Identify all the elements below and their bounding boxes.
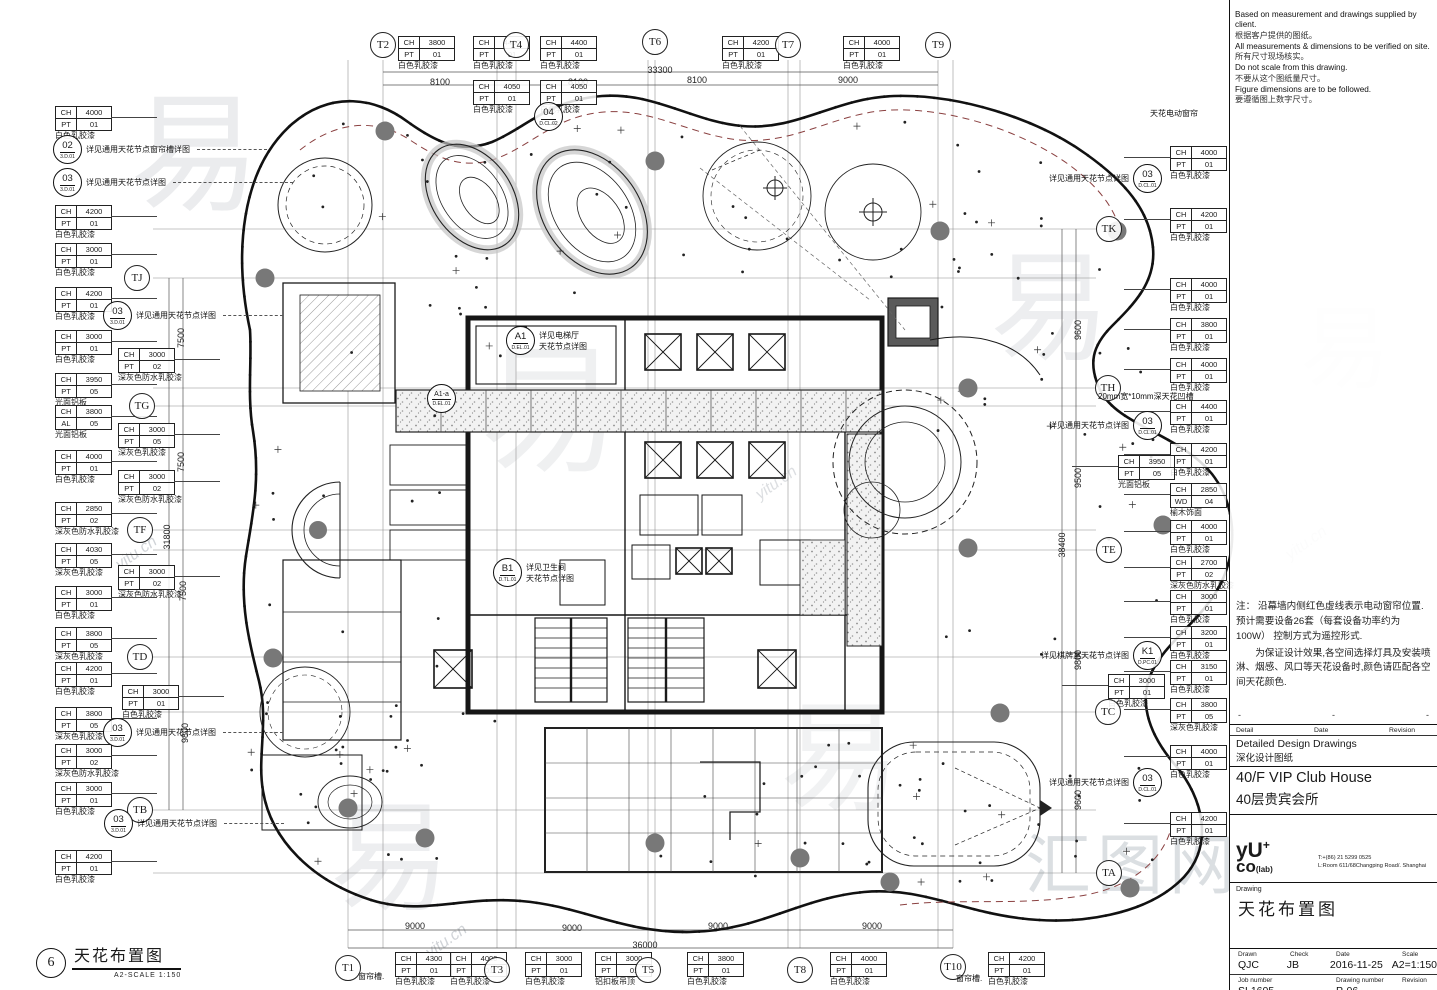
column	[991, 704, 1010, 723]
finish-name: 深灰色乳胶漆	[1170, 724, 1227, 732]
finish-name: 白色乳胶漆	[395, 978, 452, 986]
title-block-sidebar: Based on measurement and drawings suppli…	[1229, 0, 1437, 990]
dimension-label: 31800	[162, 524, 172, 549]
drawing-label: Drawing	[1236, 886, 1437, 893]
plan-title-block: 6 天花布置图 A2-SCALE 1:150	[36, 942, 181, 979]
finish-tag: CH3150PT01白色乳胶漆	[1170, 660, 1227, 694]
finish-name: 白色乳胶漆	[540, 62, 597, 70]
detail-callout-A1-a: A1-aD.EL.01	[427, 384, 464, 413]
column	[881, 873, 900, 892]
detail-callout-A1: A1D.EL.01详见电梯厅 天花节点详图	[506, 326, 591, 355]
note-cn-3: 要遵循图上数字尺寸。	[1235, 95, 1434, 105]
grid-bubble-TC: TC	[1095, 699, 1121, 725]
finish-name: 深灰色防水乳胶漆	[118, 374, 182, 382]
callout-circle: K1D.PC.01	[1133, 641, 1162, 670]
finish-tag: CH3000PT01白色乳胶漆	[55, 330, 112, 364]
finish-tag: CH4030PT05深灰色乳胶漆	[55, 543, 112, 577]
detail-callout-03: 详见通用天花节点详图03D.CL.01	[934, 411, 1162, 440]
callout-circle: 03D.CL.01	[1133, 768, 1162, 797]
callout-circle: 03D.CL.01	[1133, 164, 1162, 193]
finish-name: 白色乳胶漆	[1170, 546, 1227, 554]
finish-tag: CH4200PT01白色乳胶漆	[1170, 208, 1227, 242]
doc-type-cn: 深化设计图纸	[1236, 750, 1431, 764]
callout-circle: A1D.EL.01	[506, 326, 535, 355]
detail-callout-03: 033.D.01详见通用天花节点详图	[104, 809, 284, 838]
finish-tag: CH3800PT05深灰色乳胶漆	[1170, 698, 1227, 732]
finish-name: 白色乳胶漆	[1170, 686, 1227, 694]
finish-tag: CH3200PT01白色乳胶漆	[1170, 626, 1227, 660]
finish-tag: CH4000PT01白色乳胶漆	[1170, 146, 1227, 180]
finish-tag: CH3800PT01白色乳胶漆	[1170, 318, 1227, 352]
finish-name: 白色乳胶漆	[55, 269, 112, 277]
finish-tag: CH4200PT01白色乳胶漆	[55, 662, 112, 696]
column	[646, 834, 665, 853]
finish-tag: CH3950PT05光面铝板	[55, 373, 112, 407]
dimension-label: 7500	[176, 328, 186, 348]
dimension-label: 9000	[405, 921, 425, 931]
grid-bubble-T9: T9	[925, 32, 951, 58]
callout-text: 详见通用天花节点详图	[1049, 777, 1129, 788]
date-label: Date	[1336, 951, 1402, 958]
finish-tag: CH4400PT01白色乳胶漆	[540, 36, 597, 70]
col-revision: Revision	[1389, 727, 1415, 734]
detail-callout-04: 04D.CL.02	[534, 102, 571, 131]
callout-text: 详见通用天花节点详图	[137, 818, 217, 829]
dimension-label: 36000	[632, 940, 657, 950]
finish-tag: CH4400PT01白色乳胶漆	[1170, 400, 1227, 434]
doc-type-en: Detailed Design Drawings	[1236, 738, 1431, 750]
firm-logo-block: yU+ co(lab) T:+(86) 21 5299 0525 L:Room …	[1230, 838, 1437, 883]
finish-name: 白色乳胶漆	[1170, 616, 1227, 624]
finish-name: 白色乳胶漆	[1170, 771, 1227, 779]
col-detail: Detail	[1236, 727, 1314, 734]
project-title-cn: 40层贵宾会所	[1236, 788, 1431, 808]
revision-dashes: ---	[1238, 710, 1429, 720]
grid-bubble-T2: T2	[370, 32, 396, 58]
column	[959, 379, 978, 398]
finish-tag: CH4000PT01白色乳胶漆	[1170, 278, 1227, 312]
finish-tag: CH4200PT01白色乳胶漆	[55, 205, 112, 239]
grid-bubble-TE: TE	[1096, 537, 1122, 563]
callout-circle: 033.D.01	[53, 168, 82, 197]
finish-name: 白色乳胶漆	[687, 978, 744, 986]
finish-tag: CH3800AL05光面铝板	[55, 405, 112, 439]
finish-tag: CH3000PT01白色乳胶漆	[122, 685, 179, 719]
grid-bubble-T5: T5	[635, 957, 661, 983]
callout-text: 详见电梯厅 天花节点详图	[539, 330, 587, 352]
job-number-value: SL1605	[1238, 985, 1290, 990]
finish-tag: CH3000PT01白色乳胶漆	[1170, 590, 1227, 624]
detail-callout-B1: B1D.TL.01详见卫生间 天花节点详图	[493, 558, 578, 587]
grid-bubble-T8: T8	[787, 957, 813, 983]
finish-tag: CH4000PT01白色乳胶漆	[1170, 520, 1227, 554]
column	[416, 829, 435, 848]
callout-text: 详见通用天花节点详图	[1049, 420, 1129, 431]
callout-circle: 033.D.01	[103, 301, 132, 330]
column	[376, 122, 395, 141]
finish-name: 白色乳胶漆	[1170, 344, 1227, 352]
column	[959, 539, 978, 558]
detail-callout-03: 033.D.01详见通用天花节点详图	[103, 301, 283, 330]
dimension-label: 8100	[430, 77, 450, 87]
finish-name: 白色乳胶漆	[55, 476, 112, 484]
elevator-shaft	[697, 334, 733, 370]
drawing-number-label: Drawing number	[1336, 977, 1402, 984]
elevator-shaft	[749, 334, 785, 370]
finish-tag: CH3950PT05光面铝板	[1118, 455, 1175, 489]
finish-tag: CH3000PT01白色乳胶漆	[525, 952, 582, 986]
callout-text: 详见棋牌室天花节点详图	[1041, 650, 1129, 661]
dimension-label: 38400	[1057, 532, 1067, 557]
finish-tag: CH3000PT02深灰色防水乳胶漆	[118, 348, 182, 382]
dimension-label: 8100	[687, 75, 707, 85]
finish-tag: CH3800PT01白色乳胶漆	[687, 952, 744, 986]
finish-tag: CH3800PT01白色乳胶漆	[398, 36, 455, 70]
finish-name: 白色乳胶漆	[398, 62, 455, 70]
finish-name: 白色乳胶漆	[1170, 652, 1227, 660]
project-title-en: 40/F VIP Club House	[1236, 770, 1431, 786]
detail-callout-03: 详见通用天花节点详图03D.CL.01	[934, 164, 1162, 193]
callout-circle: 023.D.01	[53, 135, 82, 164]
drawing-meta-table: Drawn Check Date Scale QJC JB 2016-11-25…	[1230, 948, 1437, 990]
finish-name: 白色乳胶漆	[1170, 426, 1227, 434]
note-en-2: Do not scale from this drawing.	[1235, 63, 1434, 73]
finish-tag: CH2850PT02深灰色防水乳胶漆	[55, 502, 119, 536]
finish-name: 白色乳胶漆	[722, 62, 779, 70]
document-title-table: Detail Date Revision Detailed Design Dra…	[1230, 724, 1437, 815]
note-en-3: Figure dimensions are to be followed.	[1235, 85, 1434, 95]
finish-tag: CH2850WD04榆木饰面	[1170, 483, 1227, 517]
dimension-label: 7500	[176, 452, 186, 472]
job-number-label: Job number	[1238, 977, 1290, 984]
note-en-0: Based on measurement and drawings suppli…	[1235, 10, 1434, 31]
finish-tag: CH3000PT05深灰色乳胶漆	[118, 423, 175, 457]
detail-callout-K1: 详见棋牌室天花节点详图K1D.PC.01	[934, 641, 1162, 670]
elevator-shaft	[676, 548, 702, 574]
grid-bubble-TA: TA	[1096, 860, 1122, 886]
drawing-title: 天花布置图	[1238, 895, 1437, 920]
grid-bubble-TF: TF	[127, 517, 153, 543]
finish-tag: CH4000PT01白色乳胶漆	[1170, 745, 1227, 779]
detail-callout-03: 033.D.01详见通用天花节点详图	[103, 718, 283, 747]
finish-tag: CH4000PT01白色乳胶漆	[843, 36, 900, 70]
column	[1121, 879, 1140, 898]
callout-circle: B1D.TL.01	[493, 558, 522, 587]
revision-label: Revision	[1402, 977, 1437, 984]
finish-tag: CH3000PT02深灰色防水乳胶漆	[118, 470, 182, 504]
grid-bubble-TJ: TJ	[124, 265, 150, 291]
grid-bubble-T6: T6	[642, 29, 668, 55]
finish-name: 深灰色防水乳胶漆	[1170, 582, 1234, 590]
finish-name: 榆木饰面	[1170, 509, 1227, 517]
callout-circle: 033.D.01	[103, 718, 132, 747]
plan-scale-text: A2-SCALE 1:150	[114, 972, 181, 979]
detail-callout-02: 023.D.01详见通用天花节点窗帘槽详图	[53, 135, 267, 164]
plan-number-circle: 6	[36, 948, 66, 978]
elevator-shaft	[645, 334, 681, 370]
finish-name: 深灰色防水乳胶漆	[118, 496, 182, 504]
plan-note-label: 天花电动窗帘	[1150, 108, 1198, 119]
finish-name: 白色乳胶漆	[1170, 469, 1227, 477]
finish-name: 白色乳胶漆	[843, 62, 900, 70]
finish-tag: CH4000PT01白色乳胶漆	[1170, 358, 1227, 392]
col-date: Date	[1314, 727, 1389, 734]
grid-bubble-T7: T7	[775, 32, 801, 58]
elevator-shaft	[706, 548, 732, 574]
check-label: Check	[1290, 951, 1336, 958]
firm-tel: T:+(86) 21 5299 0525	[1318, 854, 1426, 862]
elevator-shaft	[749, 442, 785, 478]
finish-name: 深灰色防水乳胶漆	[55, 770, 119, 778]
column	[339, 799, 358, 818]
finish-name: 白色乳胶漆	[830, 978, 887, 986]
curtain-note: 注： 沿幕墙内侧红色虚线表示电动窗帘位置.预计需要设备26套（每套设备功率约为1…	[1236, 600, 1433, 693]
dimension-label: 9000	[708, 921, 728, 931]
elevator-shaft	[758, 650, 796, 688]
finish-name: 白色乳胶漆	[473, 62, 530, 70]
dimension-label: 9000	[862, 921, 882, 931]
callout-circle: 03D.CL.01	[1133, 411, 1162, 440]
finish-name: 白色乳胶漆	[988, 978, 1045, 986]
callout-text: 详见通用天花节点详图	[1049, 173, 1129, 184]
finish-tag: CH3000PT01白色乳胶漆	[55, 586, 112, 620]
scale-label: Scale	[1402, 951, 1437, 958]
plan-title-text: 天花布置图	[72, 942, 181, 970]
dimension-chains	[169, 72, 1076, 948]
finish-name: 白色乳胶漆	[1170, 304, 1227, 312]
grid-bubble-TD: TD	[127, 644, 153, 670]
detail-callout-03: 详见通用天花节点详图03D.CL.01	[934, 768, 1162, 797]
finish-tag: CH4200PT01白色乳胶漆	[55, 850, 112, 884]
finish-tag: CH3000PT02深灰色防水乳胶漆	[118, 565, 182, 599]
dimension-label: 33300	[647, 65, 672, 75]
note-en-1: All measurements & dimensions to be veri…	[1235, 42, 1434, 52]
finish-tag: CH4300PT01白色乳胶漆	[395, 952, 452, 986]
scale-value: A2=1:150	[1392, 959, 1437, 971]
finish-tag: CH4000PT01白色乳胶漆	[830, 952, 887, 986]
dimension-label: 9000	[562, 923, 582, 933]
firm-address: L:Room 611/68Changping Road/. Shanghai	[1318, 862, 1426, 870]
column	[791, 849, 810, 868]
column	[646, 152, 665, 171]
column	[264, 649, 283, 668]
callout-text: 详见通用天花节点详图	[136, 727, 216, 738]
grid-bubble-TG: TG	[129, 393, 155, 419]
dimension-label: 9000	[838, 75, 858, 85]
finish-tag: CH3000PT01白色乳胶漆	[55, 243, 112, 277]
finish-name: 白色乳胶漆	[473, 106, 530, 114]
detail-callout-03: 033.D.01详见通用天花节点详图	[53, 168, 293, 197]
elevator-shaft	[645, 442, 681, 478]
finish-name: 白色乳胶漆	[1170, 172, 1227, 180]
callout-text: 详见通用天花节点详图	[136, 310, 216, 321]
callout-text: 详见通用天花节点窗帘槽详图	[86, 144, 190, 155]
finish-tag: CH4000PT01白色乳胶漆	[55, 450, 112, 484]
finish-name: 白色乳胶漆	[1170, 234, 1227, 242]
finish-tag: CH4200PT01白色乳胶漆	[1170, 812, 1227, 846]
callout-circle: 04D.CL.02	[534, 102, 563, 131]
finish-name: 深灰色乳胶漆	[55, 569, 112, 577]
column	[931, 222, 950, 241]
grid-bubble-TK: TK	[1096, 216, 1122, 242]
finish-tag: CH4050PT01白色乳胶漆	[473, 80, 530, 114]
callout-text: 详见卫生间 天花节点详图	[526, 562, 574, 584]
date-value: 2016-11-25	[1330, 959, 1392, 971]
finish-tag: CH2700PT02深灰色防水乳胶漆	[1170, 556, 1234, 590]
finish-tag: CH4200PT01白色乳胶漆	[1170, 443, 1227, 477]
finish-name: 白色乳胶漆	[55, 876, 112, 884]
column	[256, 269, 275, 288]
finish-tag: CH4200PT01白色乳胶漆	[988, 952, 1045, 986]
drawn-value: QJC	[1238, 959, 1287, 971]
curtain-note-p1: 注： 沿幕墙内侧红色虚线表示电动窗帘位置.预计需要设备26套（每套设备功率约为1…	[1236, 600, 1433, 645]
plan-note-label: 窗帘槽.	[956, 973, 982, 984]
callout-text: 详见通用天花节点详图	[86, 177, 166, 188]
callout-circle: 033.D.01	[104, 809, 133, 838]
firm-logo: yU+ co(lab)	[1236, 840, 1273, 874]
note-cn-1: 所有尺寸现场核实。	[1235, 52, 1434, 62]
check-value: JB	[1287, 959, 1330, 971]
finish-name: 白色乳胶漆	[55, 612, 112, 620]
grid-bubble-T3: T3	[484, 957, 510, 983]
grid-bubble-T4: T4	[503, 32, 529, 58]
finish-tag: CH3800PT05深灰色乳胶漆	[55, 627, 112, 661]
stairs	[535, 618, 704, 702]
finish-name: 白色乳胶漆	[55, 356, 112, 364]
finish-name: 光面铝板	[1118, 481, 1175, 489]
drawn-label: Drawn	[1238, 951, 1290, 958]
finish-name: 白色乳胶漆	[55, 688, 112, 696]
note-cn-2: 不要从这个图纸量尺寸。	[1235, 74, 1434, 84]
svg-text:易: 易	[990, 242, 1110, 376]
elevator-shaft	[697, 442, 733, 478]
finish-name: 光面铝板	[55, 431, 112, 439]
finish-name: 深灰色乳胶漆	[118, 449, 175, 457]
finish-name: 深灰色乳胶漆	[55, 653, 112, 661]
drawing-sheet: 易 易 易 易 易 易 汇图网 yitu.cn yitu.cn yitu.cn …	[0, 0, 1437, 990]
firm-contact: T:+(86) 21 5299 0525 L:Room 611/68Changp…	[1318, 854, 1426, 871]
note-cn-0: 根据客户提供的图纸。	[1235, 31, 1434, 41]
callout-circle: A1-aD.EL.01	[427, 384, 456, 413]
dimension-label: 9600	[1073, 320, 1083, 340]
drawing-number-value: P-06	[1336, 985, 1402, 990]
finish-tag: CH3000PT02深灰色防水乳胶漆	[55, 744, 119, 778]
finish-name: 白色乳胶漆	[525, 978, 582, 986]
finish-name: 白色乳胶漆	[55, 231, 112, 239]
finish-tag: CH4200PT01白色乳胶漆	[722, 36, 779, 70]
curtain-note-p2: 为保证设计效果,各空间选择灯具及安装喷淋、烟感、风口等天花设备时,颜色请匹配各空…	[1236, 647, 1433, 692]
drawing-name-block: Drawing 天花布置图	[1230, 884, 1437, 946]
dimension-label: 9500	[1073, 468, 1083, 488]
finish-name: 深灰色防水乳胶漆	[55, 528, 119, 536]
finish-name: 白色乳胶漆	[1170, 838, 1227, 846]
plan-note-label: 窗帘槽.	[358, 971, 384, 982]
general-notes: Based on measurement and drawings suppli…	[1235, 10, 1434, 106]
plan-note-label: 20mm宽*10mm深天花凹槽	[1098, 391, 1194, 402]
